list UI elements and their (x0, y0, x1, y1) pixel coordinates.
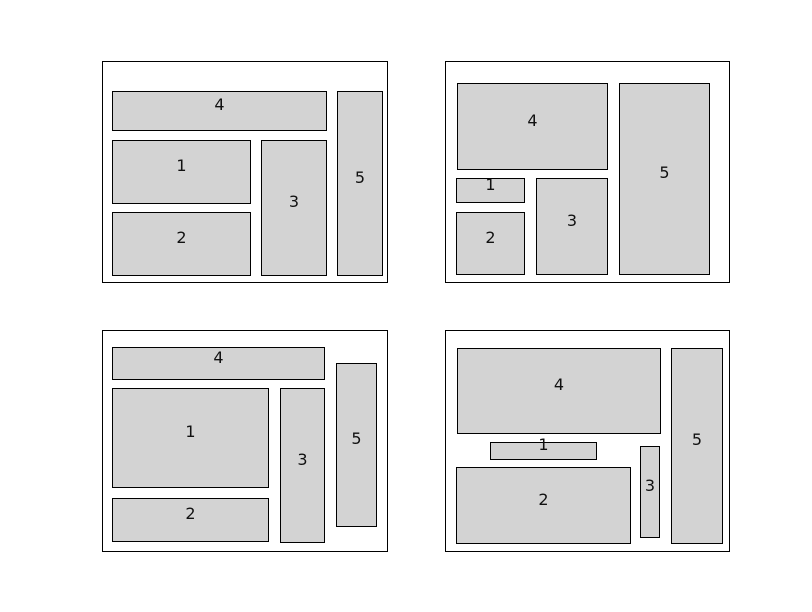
box-label: 2 (485, 230, 495, 246)
packed-rect-bottom-right-4: 4 (457, 348, 661, 434)
packed-rect-top-right-5: 5 (619, 83, 710, 275)
box-label: 3 (289, 194, 299, 210)
packed-rect-top-left-2: 2 (112, 212, 251, 276)
packed-rect-top-right-2: 2 (456, 212, 525, 275)
packed-rect-bottom-right-1: 1 (490, 442, 597, 460)
box-label: 2 (538, 492, 548, 508)
packed-rect-top-left-1: 1 (112, 140, 251, 204)
packed-rect-bottom-right-5: 5 (671, 348, 723, 544)
packed-rect-top-left-4: 4 (112, 91, 327, 131)
box-label: 1 (176, 158, 186, 174)
packed-rect-bottom-right-2: 2 (456, 467, 631, 544)
box-label: 4 (214, 97, 224, 113)
box-label: 2 (185, 506, 195, 522)
packed-rect-bottom-left-5: 5 (336, 363, 377, 527)
packed-rect-bottom-right-3: 3 (640, 446, 660, 538)
packed-rect-bottom-left-3: 3 (280, 388, 325, 543)
figure-canvas: 41235412354123541235 (0, 0, 812, 612)
box-label: 1 (538, 437, 548, 453)
box-label: 5 (351, 431, 361, 447)
packed-rect-top-left-5: 5 (337, 91, 383, 276)
packed-rect-bottom-left-4: 4 (112, 347, 325, 380)
box-label: 3 (567, 213, 577, 229)
box-label: 4 (554, 377, 564, 393)
box-label: 3 (645, 478, 655, 494)
box-label: 1 (485, 177, 495, 193)
box-label: 2 (176, 230, 186, 246)
box-label: 3 (297, 452, 307, 468)
box-label: 5 (692, 432, 702, 448)
packed-rect-top-right-4: 4 (457, 83, 608, 170)
packed-rect-top-right-3: 3 (536, 178, 608, 275)
box-label: 1 (185, 424, 195, 440)
box-label: 4 (213, 350, 223, 366)
packed-rect-top-right-1: 1 (456, 178, 525, 203)
packed-rect-bottom-left-1: 1 (112, 388, 269, 488)
packed-rect-top-left-3: 3 (261, 140, 327, 276)
box-label: 5 (659, 165, 669, 181)
box-label: 5 (355, 170, 365, 186)
packed-rect-bottom-left-2: 2 (112, 498, 269, 542)
box-label: 4 (527, 113, 537, 129)
